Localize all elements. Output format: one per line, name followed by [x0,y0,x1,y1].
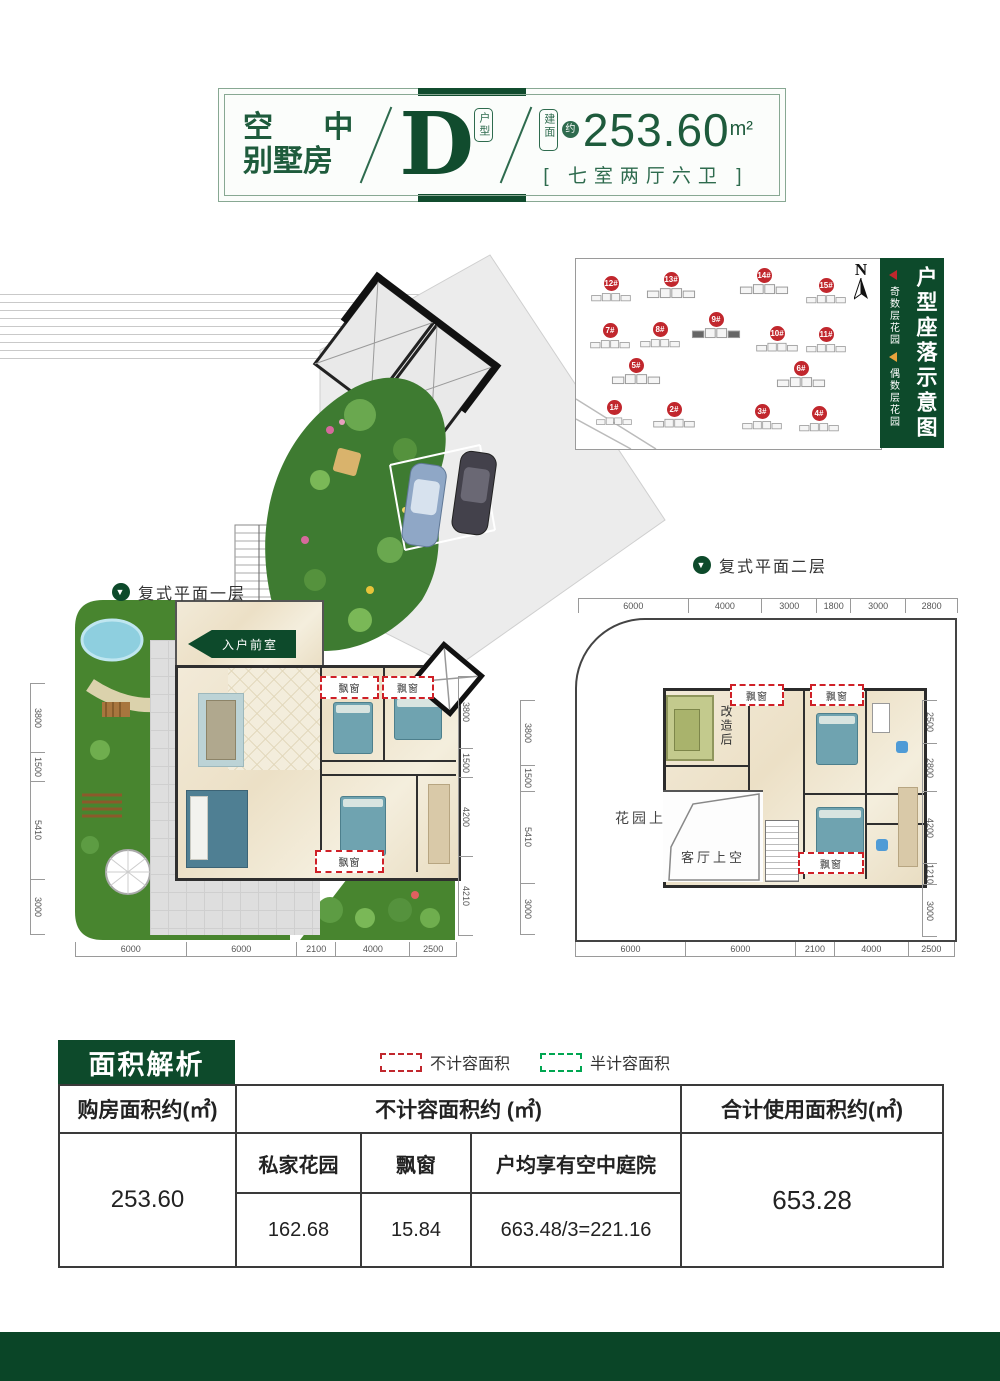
total-area-value: 653.28 [681,1133,943,1267]
bay-window-box: 飘窗 [382,676,434,699]
building-number-badge: 1# [607,400,622,415]
red-dashed-box-icon [380,1053,422,1072]
living-void-label: 客厅上空 [681,847,745,866]
building-marker-15: 15# [796,275,856,311]
approx-circle-badge: 约 [562,121,579,138]
room-layout-text: [ 七室两厅六卫 ] [539,161,753,188]
compass-needle-icon [854,278,868,300]
building-footprint-icon [772,376,830,389]
dimension-label: 6000 [623,601,643,611]
slash-divider [500,107,533,184]
building-number-badge: 6# [794,361,809,376]
dimension-label: 6000 [231,944,251,954]
odd-level-arrow-icon [889,270,897,280]
ruler-segment: 6000 [685,942,795,957]
wall [666,765,748,767]
building-number-badge: 7# [603,323,618,338]
building-footprint-icon [735,283,793,296]
dimension-label: 1210 [925,864,935,884]
building-footprint-icon [799,421,839,434]
dimension-label: 1500 [33,757,43,777]
wall [865,691,867,879]
dimension-label: 2800 [922,601,942,611]
area-table: 购房面积约(㎡) 不计容面积约 (㎡) 合计使用面积约(㎡) 253.60 私家… [58,1084,944,1268]
ruler-segment: 2500 [922,700,937,743]
building-marker-5: 5# [606,355,666,391]
odd-level-label: 奇数层花园 [886,286,901,346]
built-area-badge: 建面 [539,109,558,151]
living-void-area: 客厅上空 [663,790,763,882]
ruler-segment: 3000 [850,598,905,613]
ruler-segment: 5410 [520,791,535,883]
title-line1: 空 中 [243,111,353,145]
bay-window-box: 飘窗 [730,684,784,706]
bay-window-label: 飘窗 [397,680,419,695]
bathtub [872,703,890,733]
building-marker-6: 6# [771,358,831,394]
building-footprint-icon [756,341,798,354]
ruler-segment: 6000 [186,942,297,957]
building-number-badge: 10# [770,326,785,341]
legend-nojirong: 不计容面积 [380,1050,510,1074]
triangle-marker-icon: ▼ [693,556,711,574]
entry-vestibule-label: 入户前室 [222,636,278,653]
sofa [190,796,208,860]
brochure-page: 空 中 别墅房 D 户型 建面 约 253.60 m² [ 七室两厅六卫 ] [0,0,1000,1381]
slash-divider [360,107,393,184]
dimension-label: 5410 [523,827,533,847]
dimension-label: 1500 [523,768,533,788]
living-void-outline [663,792,763,882]
building-footprint-icon [642,287,700,300]
floor1-title-text: 复式平面一层 [138,580,246,604]
building-footprint-icon [653,417,695,430]
dimension-label: 2500 [423,944,443,954]
building-marker-9: 9# [686,309,746,345]
bay-window-label: 飘窗 [339,680,361,695]
building-number-badge: 15# [819,278,834,293]
bay-window-label: 飘窗 [826,688,848,703]
building-number-badge: 11# [819,327,834,342]
bay-window-label: 飘窗 [820,856,842,871]
ruler-segment: 4000 [688,598,761,613]
dimension-label: 3800 [461,702,471,722]
garden-level-legend: 奇数层花园 偶数层花园 [880,258,906,448]
header-content: 空 中 别墅房 D 户型 建面 约 253.60 m² [ 七室两厅六卫 ] [224,94,780,196]
floor2-left-ruler: 3800150054103000 [520,700,535,935]
wall [320,760,456,762]
building-footprint-icon [640,337,680,350]
building-number-badge: 14# [757,268,772,283]
built-area-value: 253.60 [583,103,730,157]
ruler-segment: 6000 [75,942,186,957]
building-number-badge: 3# [755,404,770,419]
renovated-label: 改造后 [718,705,735,747]
unit-type-letter: D [399,102,474,188]
sub-header-courtyard: 户均享有空中庭院 [471,1133,681,1193]
building-marker-12: 12# [581,273,641,309]
building-marker-8: 8# [630,319,690,355]
bed [340,796,386,856]
even-level-arrow-icon [889,352,897,362]
dimension-label: 3000 [868,601,888,611]
building-footprint-icon [806,342,846,355]
ruler-segment: 3800 [458,676,473,748]
bed [674,709,700,751]
building-footprint-icon [690,327,742,340]
dimension-label: 6000 [620,944,640,954]
dimension-label: 3800 [523,723,533,743]
ruler-segment: 5410 [30,781,45,879]
renovated-bedroom [666,695,714,761]
purchase-area-value: 253.60 [59,1133,236,1267]
north-compass: N [848,262,874,303]
cabinet [898,787,918,867]
dimension-label: 4000 [861,944,881,954]
courtyard-area-value: 663.48/3=221.16 [471,1193,681,1267]
floor2-right-ruler: 25002800420012103000 [922,700,937,937]
building-footprint-icon [806,293,846,306]
sub-header-garden: 私家花园 [236,1133,361,1193]
dimension-label: 2100 [805,944,825,954]
floor2-top-ruler: 600040003000180030002800 [578,598,958,613]
dimension-label: 2100 [306,944,326,954]
wall [748,691,750,793]
dimension-label: 4000 [715,601,735,611]
dimension-label: 4210 [461,886,471,906]
legend-banjirong: 半计容面积 [540,1050,670,1074]
ruler-segment: 2800 [922,743,937,791]
area-analysis-title-text: 面积解析 [89,1043,205,1082]
building-number-badge: 9# [709,312,724,327]
dimension-label: 3000 [523,899,533,919]
dimension-label: 6000 [121,944,141,954]
ruler-segment: 3000 [922,884,937,937]
building-number-badge: 2# [667,402,682,417]
unit-type-badge: 户型 [474,108,493,142]
ruler-segment: 4200 [458,777,473,856]
building-marker-4: 4# [789,403,849,439]
footer-green-bar [0,1332,1000,1381]
bay-window-label: 飘窗 [746,688,768,703]
building-marker-13: 13# [641,269,701,305]
project-title: 空 中 别墅房 [243,111,353,179]
ruler-segment: 3000 [520,883,535,935]
baywindow-area-value: 15.84 [361,1193,471,1267]
ruler-segment: 2500 [908,942,955,957]
dimension-label: 5410 [33,820,43,840]
legend-nojirong-label: 不计容面积 [430,1056,510,1073]
bay-window-box: 飘窗 [798,852,864,874]
dimension-label: 3000 [925,901,935,921]
ruler-segment: 6000 [575,942,685,957]
unit-type-block: D 户型 [399,102,493,188]
col-header-nojirong: 不计容面积约 (㎡) [236,1085,681,1133]
ruler-segment: 4210 [458,856,473,936]
site-map-buildings: 12#13#14#15#7#8#9#10#11#5#6#1#2#3#4# [576,259,881,449]
floor2-bottom-ruler: 60006000210040002500 [575,942,955,957]
ruler-segment: 3000 [30,879,45,935]
dimension-label: 4200 [461,807,471,827]
ruler-segment: 3800 [520,700,535,765]
building-marker-2: 2# [644,399,704,435]
building-footprint-icon [742,419,782,432]
area-legend: 不计容面积 半计容面积 [380,1050,670,1074]
ruler-segment: 1500 [458,748,473,777]
ruler-segment: 6000 [578,598,688,613]
dimension-label: 3000 [33,897,43,917]
bay-window-box: 飘窗 [315,850,384,873]
staircase [765,820,799,882]
floor1-left-ruler: 3800150054103000 [30,683,45,935]
title-line2: 别墅房 [243,145,353,179]
compass-n-label: N [855,260,867,279]
ruler-segment: 1210 [922,863,937,884]
floor1-bottom-ruler: 60006000210040002500 [75,942,457,957]
building-number-badge: 5# [629,358,644,373]
dimension-label: 4000 [363,944,383,954]
floor1-right-ruler: 3800150042004210 [458,676,473,936]
bay-window-label: 飘窗 [339,854,361,869]
green-dashed-box-icon [540,1053,582,1072]
floor1-title: ▼ 复式平面一层 [112,580,246,604]
site-map-sidebar: 奇数层花园 偶数层花园 户型座落示意图 [880,258,944,448]
building-marker-3: 3# [732,401,792,437]
building-footprint-icon [591,291,631,304]
ruler-segment: 2500 [409,942,457,957]
bed [816,713,858,765]
header-box: 空 中 别墅房 D 户型 建面 约 253.60 m² [ 七室两厅六卫 ] [218,88,786,202]
dimension-label: 1500 [461,753,471,773]
cloak-cabinet [428,784,450,864]
col-header-purchase: 购房面积约(㎡) [59,1085,236,1133]
building-footprint-icon [590,338,630,351]
dimension-label: 2500 [925,712,935,732]
dimension-label: 6000 [730,944,750,954]
bay-window-box: 飘窗 [320,676,379,699]
wall [416,774,418,872]
building-number-badge: 4# [812,406,827,421]
dining-table [206,700,236,760]
ruler-segment: 1800 [816,598,850,613]
ruler-segment: 2800 [905,598,958,613]
ruler-segment: 2100 [296,942,335,957]
dimension-label: 2500 [921,944,941,954]
area-block: 建面 约 253.60 m² [ 七室两厅六卫 ] [539,103,753,188]
floor2-title: ▼ 复式平面二层 [693,553,827,577]
even-level-label: 偶数层花园 [886,368,901,428]
dimension-label: 3800 [33,708,43,728]
building-footprint-icon [606,373,666,386]
dimension-label: 3000 [779,601,799,611]
dimension-label: 2800 [925,758,935,778]
floor2-title-text: 复式平面二层 [719,553,827,577]
wall [320,774,456,776]
dimension-label: 1800 [824,601,844,611]
col-header-total: 合计使用面积约(㎡) [681,1085,943,1133]
wall [803,691,805,879]
bed [333,702,373,754]
garden-area-value: 162.68 [236,1193,361,1267]
building-number-badge: 12# [604,276,619,291]
ruler-segment: 4000 [834,942,908,957]
ruler-segment: 1500 [30,752,45,780]
built-area-unit: m² [730,118,753,141]
triangle-marker-icon: ▼ [112,583,130,601]
bay-window-box: 飘窗 [810,684,864,706]
building-marker-1: 1# [584,397,644,433]
ruler-segment: 1500 [520,765,535,791]
building-marker-11: 11# [796,324,856,360]
building-number-badge: 8# [653,322,668,337]
ruler-segment: 3800 [30,683,45,752]
ruler-segment: 3000 [761,598,816,613]
sub-header-baywindow: 飘窗 [361,1133,471,1193]
toilet [876,839,888,851]
building-footprint-icon [596,415,632,428]
legend-banjirong-label: 半计容面积 [590,1056,670,1073]
dimension-label: 4200 [925,818,935,838]
building-number-badge: 13# [664,272,679,287]
ruler-segment: 2100 [795,942,834,957]
toilet [896,741,908,753]
ruler-segment: 4200 [922,791,937,863]
building-marker-14: 14# [734,265,794,301]
site-map-title: 户型座落示意图 [906,258,944,448]
ruler-segment: 4000 [335,942,409,957]
area-analysis-title: 面积解析 [58,1040,235,1084]
site-map-panel: 12#13#14#15#7#8#9#10#11#5#6#1#2#3#4# [575,258,882,450]
